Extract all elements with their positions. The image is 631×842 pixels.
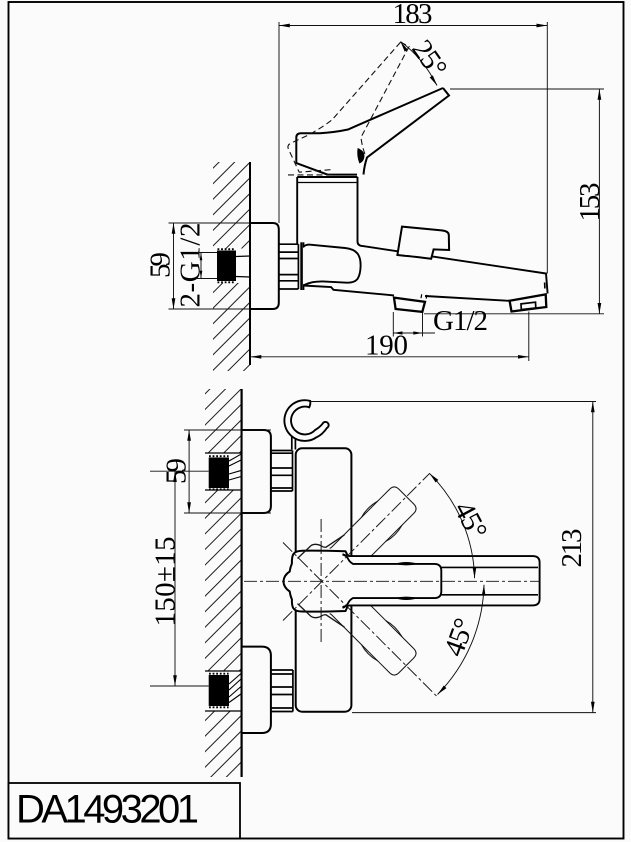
svg-text:183: 183 <box>393 0 433 30</box>
svg-text:G1/2: G1/2 <box>433 305 488 337</box>
svg-text:150±15: 150±15 <box>150 537 182 627</box>
svg-text:59: 59 <box>145 252 177 278</box>
svg-text:2-G1/2: 2-G1/2 <box>175 223 207 308</box>
svg-text:DA1493201: DA1493201 <box>16 788 199 832</box>
svg-text:213: 213 <box>556 529 588 568</box>
svg-text:153: 153 <box>574 183 606 222</box>
